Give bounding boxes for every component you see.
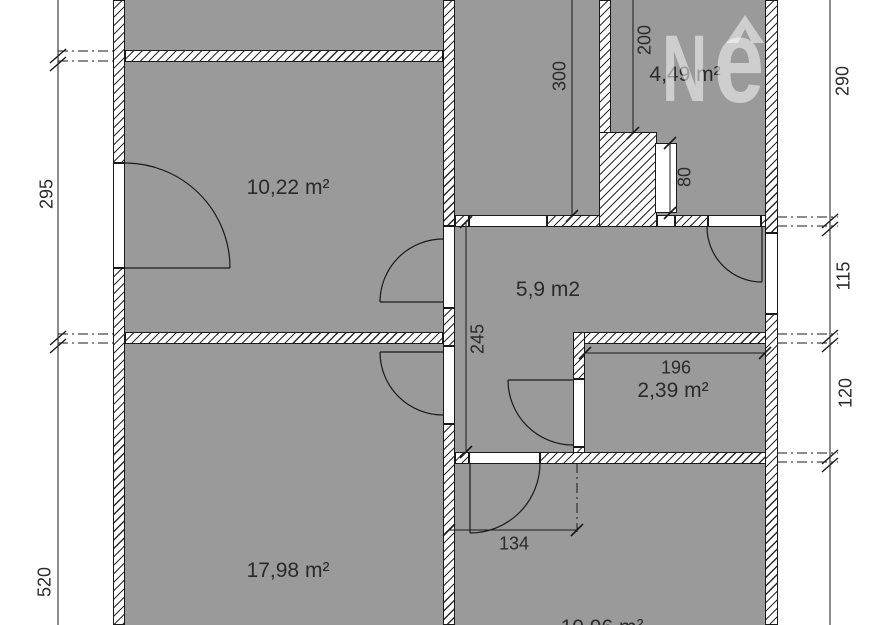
room-area-label-2-39: 2,39 m² xyxy=(637,379,708,403)
dimension-label-300: 300 xyxy=(550,61,571,91)
room-area-label-4-49: 4,49 m² xyxy=(649,63,720,87)
dimension-label-295: 295 xyxy=(37,179,58,209)
dimension-label-80: 80 xyxy=(675,167,696,187)
door-swing-arcs xyxy=(125,163,762,533)
plan-linework-layer xyxy=(0,0,894,625)
dimension-label-290: 290 xyxy=(833,66,854,96)
dimension-lines xyxy=(58,0,830,625)
extension-dashes xyxy=(58,51,838,532)
dimension-label-196: 196 xyxy=(661,358,691,379)
dimension-label-245: 245 xyxy=(468,324,489,354)
room-area-label-5-9: 5,9 m2 xyxy=(516,278,580,302)
floor-plan: 10,22 m² 4,49 m² 5,9 m2 2,39 m² 17,98 m²… xyxy=(0,0,894,625)
dimension-label-200: 200 xyxy=(635,25,656,55)
dimension-break-marks xyxy=(50,49,838,472)
dimension-ticks xyxy=(443,127,771,536)
room-area-label-partial: 10,96 m² xyxy=(561,616,644,625)
dimension-label-115: 115 xyxy=(834,262,855,291)
dimension-label-120: 120 xyxy=(836,378,857,408)
room-area-label-17-98: 17,98 m² xyxy=(247,559,330,583)
dimension-label-134: 134 xyxy=(499,534,529,555)
dimension-label-520: 520 xyxy=(35,567,56,597)
room-area-label-10-22: 10,22 m² xyxy=(247,176,330,200)
